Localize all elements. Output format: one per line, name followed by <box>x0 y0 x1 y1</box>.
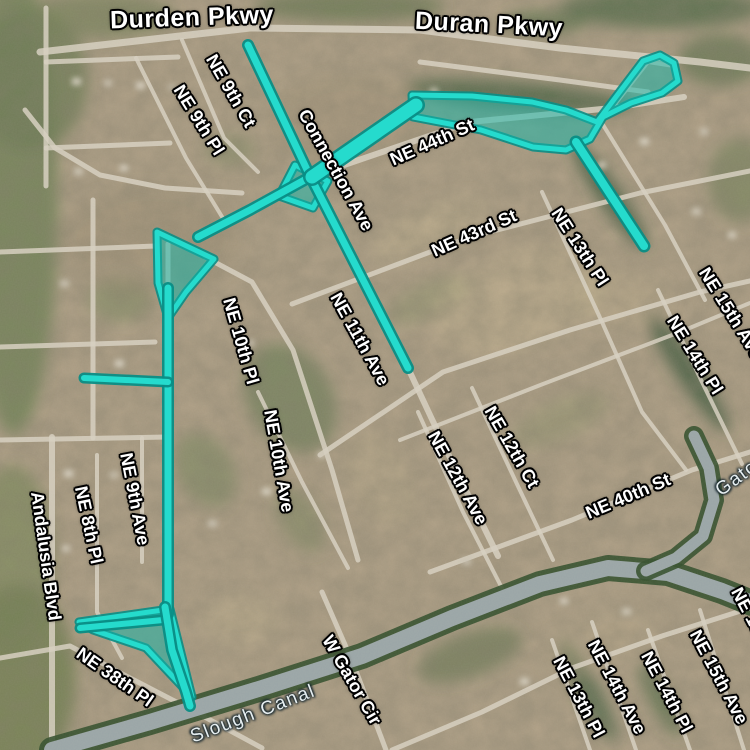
map-artwork <box>0 0 750 750</box>
satellite-map[interactable]: Durden PkwyDuran PkwyNE 9th CtNE 9th PlC… <box>0 0 750 750</box>
